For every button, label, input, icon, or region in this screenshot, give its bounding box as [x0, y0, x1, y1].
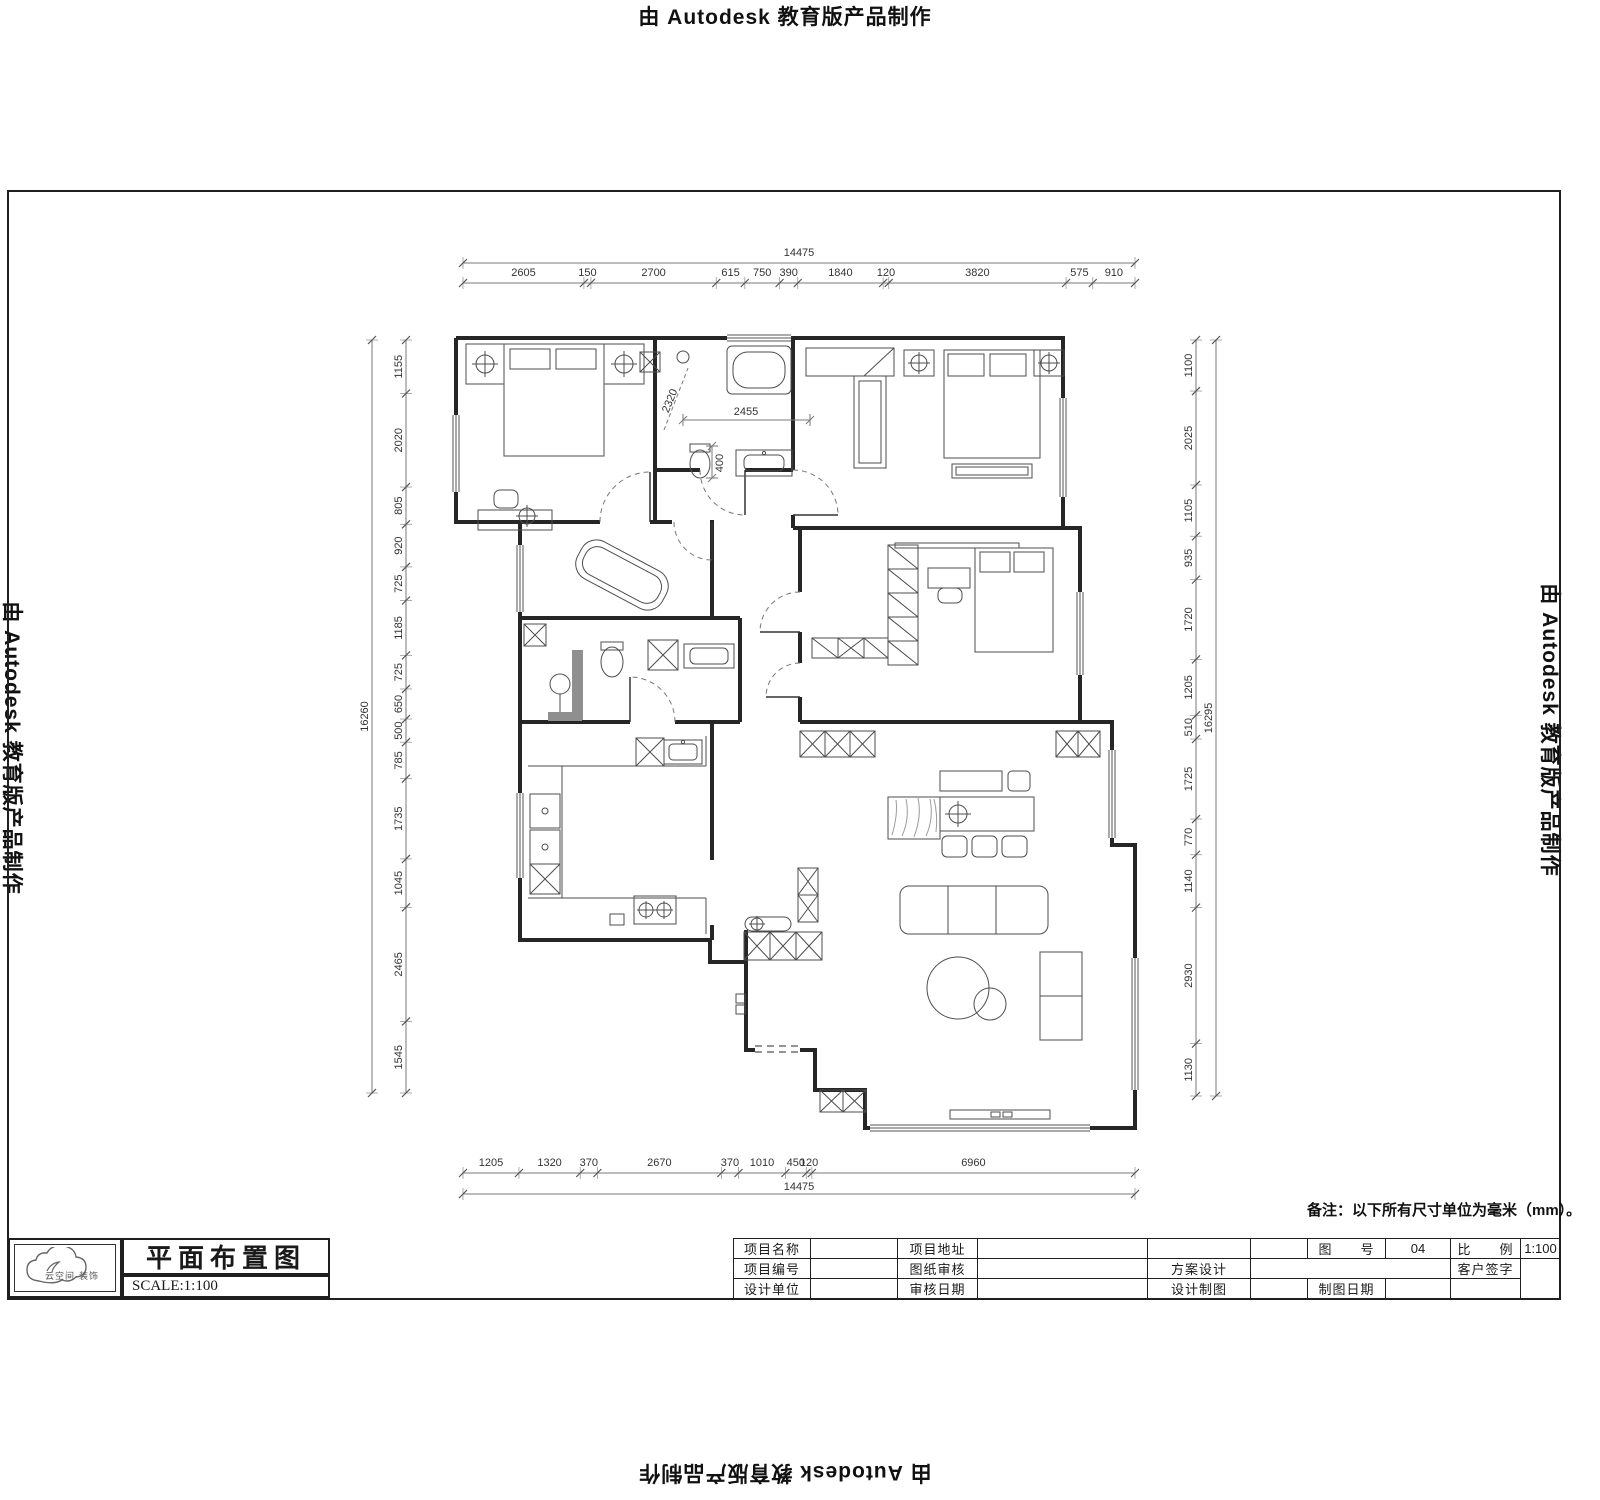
switch [736, 1005, 745, 1014]
door [766, 663, 800, 697]
dim-label: 1155 [393, 355, 405, 379]
dim-label: 150 [578, 267, 596, 279]
dining-chair [942, 836, 967, 857]
cabinet-x [820, 1090, 843, 1112]
chair [494, 490, 518, 508]
pillow [510, 349, 550, 369]
appliance [530, 794, 560, 828]
dim-label: 910 [1105, 267, 1123, 279]
piano-inner [578, 542, 666, 608]
cad-sheet: { "stamps": { "top": "由 Autodesk 教育版产品制作… [0, 0, 1600, 1500]
field-label: 设计制图 [1147, 1278, 1251, 1299]
field-label: 项目编号 [733, 1258, 811, 1279]
dim-label: 785 [393, 751, 405, 769]
units-note: 备注：以下所有尺寸单位为毫米（mm）。 [1307, 1199, 1581, 1220]
left-dim-total: 16260 [359, 336, 378, 1097]
dim-label: 370 [721, 1157, 739, 1169]
dim-label: 2700 [641, 267, 665, 279]
dim-label: 1720 [1183, 607, 1195, 631]
dim-label: 575 [1070, 267, 1088, 279]
living-dining-furniture [736, 771, 1082, 1119]
dim-label: 510 [1183, 718, 1195, 736]
ceiling-light-icon [908, 352, 930, 374]
dim-label: 500 [393, 721, 405, 739]
bottom-dim-segments: 12051320370267037010104501206960 [459, 1157, 1139, 1179]
figure-number: 04 [1385, 1238, 1451, 1259]
cabinet-x [843, 1090, 866, 1112]
bathroom2-fixtures [548, 642, 734, 721]
floor-drain [677, 351, 689, 363]
bed [504, 344, 604, 456]
door [630, 677, 675, 722]
field-label: 客户签字 [1450, 1258, 1521, 1279]
dim-label: 120 [800, 1157, 818, 1169]
door [674, 522, 712, 560]
dining-chair [972, 836, 997, 857]
cabinet-x [798, 868, 818, 895]
field-value [810, 1258, 898, 1279]
dim-label: 2455 [734, 406, 758, 418]
small-appliance [610, 914, 624, 925]
piano-room-furniture [570, 534, 674, 616]
dining-chair [1008, 771, 1030, 791]
dim-label: 6960 [961, 1157, 985, 1169]
door [700, 470, 745, 515]
field-value [1250, 1238, 1308, 1259]
window [1131, 958, 1139, 1090]
dim-label: 2020 [393, 428, 405, 452]
dim-label: 1045 [393, 871, 405, 895]
furniture [466, 344, 1082, 1119]
ceiling-light-icon [611, 351, 637, 377]
dim-label: 16260 [359, 701, 371, 732]
cabinet-x [770, 932, 796, 960]
window [1059, 398, 1067, 497]
field-value [1250, 1278, 1308, 1299]
window [516, 545, 524, 612]
field-value [977, 1238, 1148, 1259]
cabinet-x [636, 738, 664, 766]
chair [938, 588, 962, 603]
dim-label: 14475 [784, 247, 815, 259]
shower-wall [548, 712, 582, 721]
desk [928, 568, 970, 588]
company-logo: 云空间·装饰 [8, 1238, 122, 1298]
cabinet-x [530, 864, 560, 894]
dim-label: 2320 [660, 387, 680, 414]
dim-label: 1105 [1183, 499, 1195, 523]
sink [684, 644, 734, 668]
dining-bench [940, 771, 1002, 791]
ceiling-light-icon [1038, 352, 1060, 374]
field-value [1385, 1278, 1451, 1299]
field-value [1450, 1278, 1521, 1299]
wardrobe [806, 348, 894, 376]
ceiling-light-icon [945, 801, 971, 827]
left-dim-segments: 1155202080592072511857256505007851735104… [393, 336, 412, 1097]
door [600, 472, 650, 522]
dim-label: 370 [580, 1157, 598, 1169]
bench [952, 464, 1032, 478]
dim-label: 1840 [828, 267, 852, 279]
dim-label: 1205 [1183, 675, 1195, 699]
door [793, 470, 838, 515]
wardrobe-diagonal [864, 348, 894, 376]
switch [736, 994, 745, 1003]
dim-label: 2465 [393, 952, 405, 976]
coffee-table [927, 957, 989, 1019]
drawing-title: 平面布置图 [122, 1238, 330, 1275]
appliance [530, 830, 560, 864]
field-value [977, 1258, 1148, 1279]
ceiling-light-icon [472, 351, 498, 377]
dim-label: 1185 [393, 616, 405, 640]
dim-label: 1320 [537, 1157, 561, 1169]
cabinet-x [825, 731, 850, 757]
field-value [810, 1238, 898, 1259]
field-label: 方案设计 [1147, 1258, 1251, 1279]
field-value [1520, 1258, 1561, 1299]
field-label: 比 例 [1450, 1238, 1521, 1259]
field-label: 图纸审核 [897, 1258, 978, 1279]
windows [452, 334, 1139, 1132]
sofa [900, 886, 1048, 934]
field-label: 图 号 [1307, 1238, 1386, 1259]
dim-label: 1010 [750, 1157, 774, 1169]
right-dim-total: 16295 [1203, 336, 1222, 1100]
dim-label: 2670 [647, 1157, 671, 1169]
dim-label: 1140 [1183, 869, 1195, 893]
master-bedroom-furniture [806, 348, 1064, 478]
field-label: 制图日期 [1307, 1278, 1386, 1299]
tv-cabinet [1040, 952, 1082, 1040]
kitchen-sink [664, 740, 702, 764]
piano [570, 534, 674, 616]
cabinet-x [796, 932, 822, 960]
window [870, 1124, 1090, 1132]
window [516, 793, 524, 878]
cabinet-x [648, 640, 678, 670]
dim-label: 725 [393, 663, 405, 681]
bottom-dim-total: 14475 [459, 1181, 1139, 1200]
dim-label: 120 [877, 267, 895, 279]
side-table [974, 988, 1006, 1020]
drawing-scale: SCALE:1:100 [122, 1275, 330, 1298]
cloud-logo-icon [17, 1247, 113, 1289]
field-label: 设计单位 [733, 1278, 811, 1299]
field-value [1147, 1238, 1251, 1259]
field-label: 项目地址 [897, 1238, 978, 1259]
pillow [980, 552, 1010, 572]
logo-text: 云空间·装饰 [45, 1269, 99, 1282]
door [760, 592, 800, 632]
bench-inner [956, 467, 1028, 475]
dim-label: 1130 [1183, 1058, 1195, 1082]
dim-label: 1725 [1183, 767, 1195, 791]
dining-chair [1002, 836, 1027, 857]
dim-label: 920 [393, 536, 405, 554]
dim-label: 400 [714, 454, 726, 472]
dim-label: 1545 [393, 1045, 405, 1069]
field-value [977, 1278, 1148, 1299]
cabinets [524, 352, 1100, 1112]
dim-label: 805 [393, 496, 405, 514]
cabinet-x [850, 731, 875, 757]
dim-label: 3820 [965, 267, 989, 279]
entry-bench [745, 916, 791, 932]
pillow [556, 349, 596, 369]
pillow [990, 354, 1026, 376]
dim-label: 770 [1183, 828, 1195, 846]
sideboard-marble [888, 797, 940, 839]
tv [950, 1110, 1050, 1119]
dim-label: 615 [721, 267, 739, 279]
dim-label: 725 [393, 575, 405, 593]
bedroom1-furniture [466, 344, 644, 530]
dim-label: 750 [753, 267, 771, 279]
bathtub [727, 346, 791, 394]
counter [528, 736, 706, 934]
window [1076, 592, 1084, 675]
field-value [810, 1278, 898, 1299]
window [1108, 750, 1116, 838]
bedroom3-furniture [812, 543, 1053, 665]
dim-label: 1100 [1183, 354, 1195, 378]
window [727, 334, 791, 342]
cabinet-x [798, 895, 818, 922]
cabinet-x [800, 731, 825, 757]
cabinet-x [1056, 731, 1078, 757]
scale-value: 1:100 [1520, 1238, 1561, 1259]
top-dim-total: 14475 [459, 247, 1139, 269]
stool [550, 674, 570, 712]
dim-label: 2025 [1183, 426, 1195, 450]
pillow [948, 354, 984, 376]
top-dim-segments: 2605150270061575039018401203820575910 [459, 267, 1139, 289]
dim-label: 1205 [479, 1157, 503, 1169]
bathtub-inner [733, 352, 785, 388]
dim-label: 2930 [1183, 963, 1195, 987]
wardrobe-inner [859, 381, 881, 463]
dim-label: 14475 [784, 1181, 815, 1193]
field-label: 审核日期 [897, 1278, 978, 1299]
dim-label: 650 [393, 695, 405, 713]
dim-label: 935 [1183, 549, 1195, 567]
dim-label: 2605 [511, 267, 535, 279]
cabinet-x [1078, 731, 1100, 757]
right-dim-segments: 1100202511059351720120551017257701140293… [1183, 336, 1202, 1100]
field-value [1250, 1258, 1451, 1279]
shower-wall [572, 650, 583, 720]
pillow [1014, 552, 1044, 572]
dim-label: 390 [779, 267, 797, 279]
cabinet-x [524, 624, 546, 646]
window [452, 415, 460, 492]
entry-door [755, 1046, 800, 1052]
toilet [601, 642, 623, 677]
stove [634, 896, 676, 924]
kitchen-furniture [528, 736, 706, 934]
dim-label: 16295 [1203, 703, 1215, 734]
dim-label: 1735 [393, 806, 405, 830]
field-label: 项目名称 [733, 1238, 811, 1259]
